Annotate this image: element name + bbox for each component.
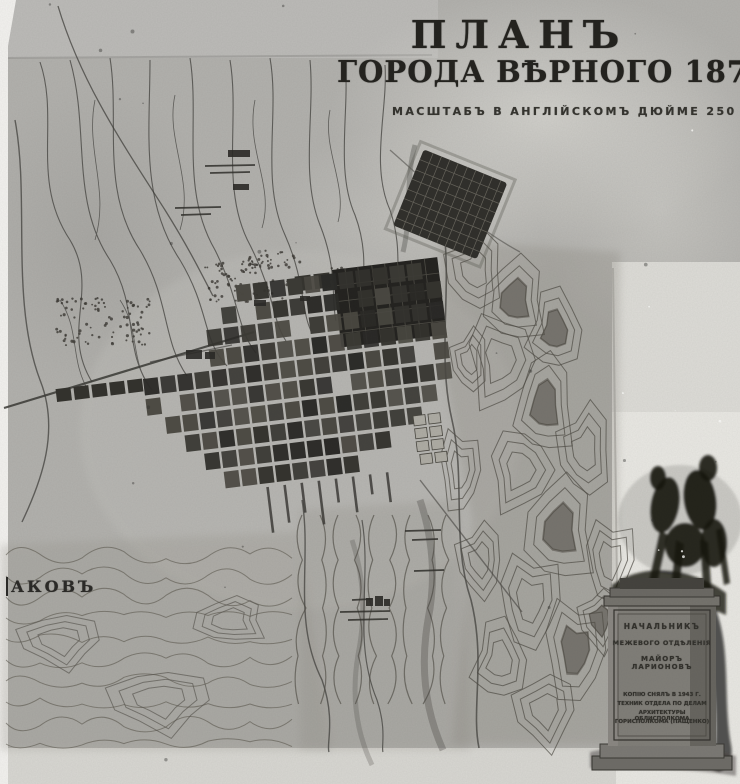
- edge-place-label: АКОВЪ: [6, 577, 96, 596]
- cartouche-line-3: МАЙОРЪ ЛАРИОНОВЪ: [612, 655, 712, 671]
- cartouche-line-2: МЕЖЕВОГО ОТДѢЛЕНІЯ: [612, 639, 712, 647]
- photo-margin-bottom: [6, 748, 616, 784]
- scale-note: МАСШТАБЪ В АНГЛІЙСКОМЪ ДЮЙМЕ 250 САЖ.: [392, 105, 740, 118]
- map-title-line1: ПЛАНЪ: [377, 12, 662, 57]
- cartouche-line-1: НАЧАЛЬНИКЪ: [612, 622, 712, 631]
- cartouche-note-1: КОПІЮ СНЯЛЪ В 1943 Г.: [612, 692, 712, 698]
- cartouche-note-2: ТЕХНИК ОТДЕЛА ПО ДЕЛАМ: [612, 701, 712, 707]
- map-photo: ПЛАНЪ ГОРОДА ВѢРНОГО 1879 ГОДА МАСШТАБЪ …: [0, 0, 740, 784]
- map-title-line2: ГОРОДА ВѢРНОГО 1879 ГОДА: [337, 55, 740, 90]
- cartouche-pedestal: [592, 578, 732, 770]
- cartouche-note-4: ГОРИСПОЛКОМА (ПАЩЕНКО): [612, 719, 712, 725]
